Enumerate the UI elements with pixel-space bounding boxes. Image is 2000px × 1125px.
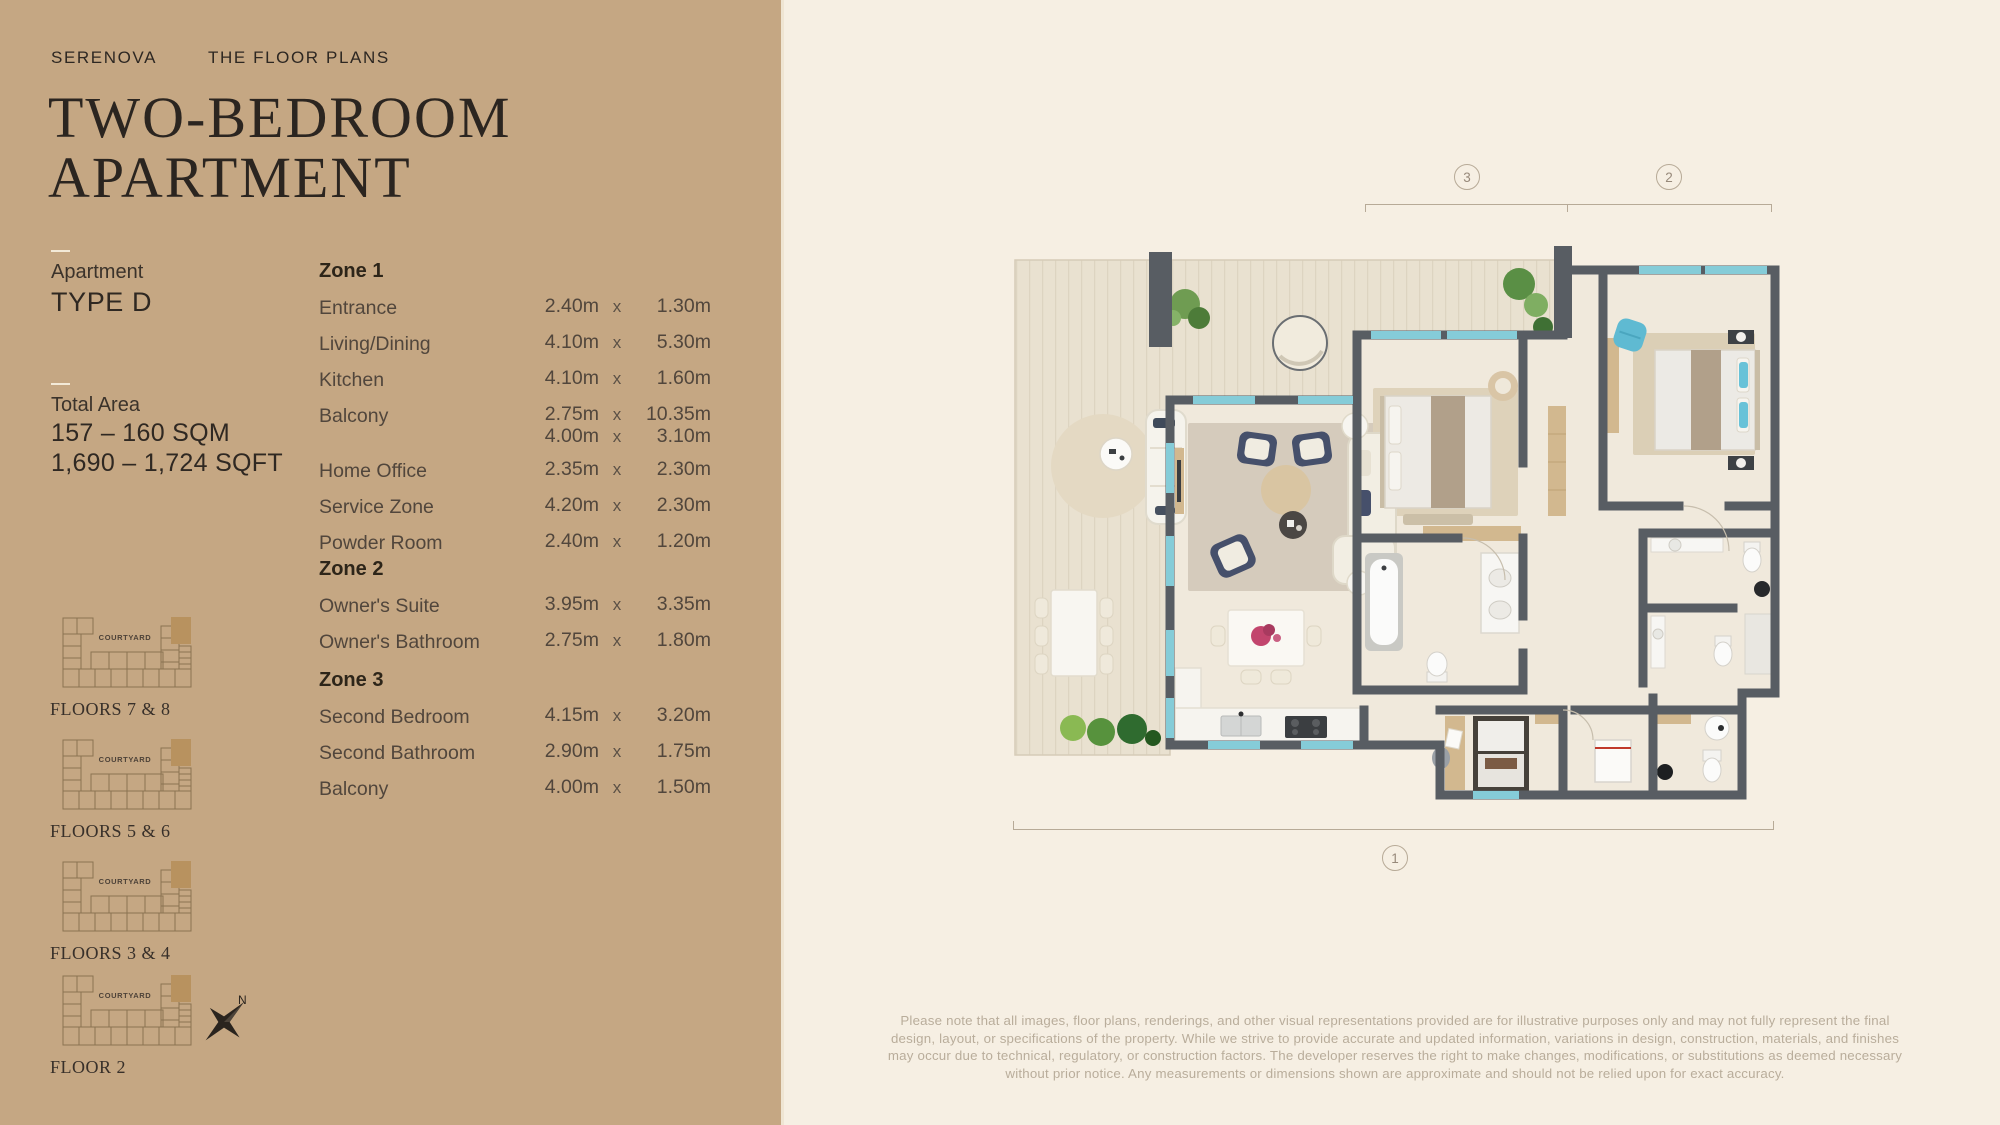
bracket-tick — [1773, 821, 1774, 829]
total-area-sqft: 1,690 – 1,724 SQFT — [51, 449, 283, 478]
room-name: Entrance — [319, 296, 527, 320]
zone-table: Zone 2Owner's Suite3.95mx3.35mOwner's Ba… — [319, 558, 711, 666]
page-title: TWO-BEDROOMAPARTMENT — [48, 88, 511, 209]
dimension-line: 2.90mx1.75m — [527, 741, 711, 763]
floor-diagram-1[interactable]: COURTYARD FLOORS 7 & 8 — [50, 612, 240, 720]
dimension-line: 2.40mx1.20m — [527, 531, 711, 553]
highlighted-unit — [171, 617, 191, 644]
total-area-label: Total Area — [51, 394, 140, 417]
dimension-row: Powder Room2.40mx1.20m — [319, 531, 711, 555]
room-dimensions: 2.35mx2.30m — [527, 459, 711, 481]
divider-dash — [51, 383, 70, 385]
dim-separator: x — [599, 332, 635, 354]
dim-width: 4.10m — [527, 332, 599, 354]
bracket-tick — [1771, 204, 1772, 212]
room-dimensions: 2.75mx10.35m4.00mx3.10m — [527, 404, 711, 447]
floor-diagram-label: FLOORS 7 & 8 — [50, 699, 240, 720]
dim-length: 1.75m — [635, 741, 711, 763]
dimension-row: Owner's Bathroom2.75mx1.80m — [319, 630, 711, 654]
room-dimensions: 4.15mx3.20m — [527, 705, 711, 727]
dim-separator: x — [599, 296, 635, 318]
dim-separator: x — [599, 705, 635, 727]
dimension-line: 2.35mx2.30m — [527, 459, 711, 481]
floor-plan-rendering — [1003, 238, 1793, 816]
floor-diagram-label: FLOOR 2 — [50, 1057, 240, 1078]
room-dimensions: 2.40mx1.30m — [527, 296, 711, 318]
dim-width: 2.90m — [527, 741, 599, 763]
dim-width: 4.10m — [527, 368, 599, 390]
room-dimensions: 2.75mx1.80m — [527, 630, 711, 652]
dim-length: 10.35m — [635, 404, 711, 426]
room-dimensions: 4.00mx1.50m — [527, 777, 711, 799]
highlighted-unit — [171, 739, 191, 766]
room-name: Balcony — [319, 404, 527, 428]
floor-plan — [1003, 238, 1793, 816]
dimension-row: Living/Dining4.10mx5.30m — [319, 332, 711, 356]
wall-stub — [1149, 252, 1172, 347]
room-dimensions: 4.20mx2.30m — [527, 495, 711, 517]
panel-divider — [781, 0, 784, 1125]
header-row: SERENOVA THE FLOOR PLANS — [51, 48, 157, 68]
highlighted-unit — [171, 975, 191, 1002]
dim-width: 2.75m — [527, 404, 599, 426]
floor-diagram-2[interactable]: COURTYARD FLOORS 5 & 6 — [50, 734, 240, 842]
dim-length: 3.35m — [635, 594, 711, 616]
hanging-chair — [1273, 316, 1327, 370]
dimension-line: 3.95mx3.35m — [527, 594, 711, 616]
building-outline: COURTYARD — [50, 856, 206, 936]
dimension-row: Balcony4.00mx1.50m — [319, 777, 711, 801]
dimension-line: 2.75mx1.80m — [527, 630, 711, 652]
dim-separator: x — [599, 777, 635, 799]
courtyard-label: COURTYARD — [99, 991, 152, 1000]
dimension-row: Home Office2.35mx2.30m — [319, 459, 711, 483]
zone-marker-3: 3 — [1454, 164, 1480, 190]
dim-separator: x — [599, 531, 635, 553]
building-outline: COURTYARD — [50, 734, 206, 814]
dim-width: 2.40m — [527, 531, 599, 553]
brand-name: SERENOVA — [51, 48, 157, 67]
dim-separator: x — [599, 495, 635, 517]
dimension-line: 4.20mx2.30m — [527, 495, 711, 517]
compass-n-label: N — [238, 993, 247, 1007]
courtyard-label: COURTYARD — [99, 755, 152, 764]
room-name: Balcony — [319, 777, 527, 801]
dim-width: 4.15m — [527, 705, 599, 727]
room-name: Home Office — [319, 459, 527, 483]
dim-length: 3.10m — [635, 426, 711, 448]
zone-bracket-top — [1365, 204, 1772, 205]
dimension-line: 4.15mx3.20m — [527, 705, 711, 727]
floor-diagram-label: FLOORS 5 & 6 — [50, 821, 240, 842]
dim-length: 3.20m — [635, 705, 711, 727]
dim-separator: x — [599, 368, 635, 390]
brochure-page: SERENOVA THE FLOOR PLANS TWO-BEDROOMAPAR… — [0, 0, 2000, 1125]
zone-marker-2: 2 — [1656, 164, 1682, 190]
bracket-tick — [1365, 204, 1366, 212]
room-dimensions: 4.10mx5.30m — [527, 332, 711, 354]
zone-title: Zone 2 — [319, 558, 711, 581]
floor-diagram-3[interactable]: COURTYARD FLOORS 3 & 4 — [50, 856, 240, 964]
floor-diagram-label: FLOORS 3 & 4 — [50, 943, 240, 964]
dim-length: 2.30m — [635, 459, 711, 481]
dimension-row: Service Zone4.20mx2.30m — [319, 495, 711, 519]
room-name: Second Bedroom — [319, 705, 527, 729]
dimension-line: 4.00mx3.10m — [527, 426, 711, 448]
zone-title: Zone 3 — [319, 669, 711, 692]
outdoor-dining-set — [1035, 590, 1113, 676]
building-outline: COURTYARD — [50, 612, 206, 692]
dimension-row: Owner's Suite3.95mx3.35m — [319, 594, 711, 618]
room-name: Kitchen — [319, 368, 527, 392]
room-name: Owner's Suite — [319, 594, 527, 618]
highlighted-unit — [171, 861, 191, 888]
dimension-row: Kitchen4.10mx1.60m — [319, 368, 711, 392]
bracket-tick — [1567, 204, 1568, 212]
dim-width: 2.35m — [527, 459, 599, 481]
dimension-line: 4.10mx1.60m — [527, 368, 711, 390]
dim-separator: x — [599, 741, 635, 763]
zone-title: Zone 1 — [319, 260, 711, 283]
legal-disclaimer: Please note that all images, floor plans… — [885, 1012, 1905, 1082]
dimension-row: Second Bathroom2.90mx1.75m — [319, 741, 711, 765]
dim-length: 1.20m — [635, 531, 711, 553]
courtyard-label: COURTYARD — [99, 877, 152, 886]
dim-width: 4.00m — [527, 426, 599, 448]
dimension-row: Balcony2.75mx10.35m4.00mx3.10m — [319, 404, 711, 447]
section-title: THE FLOOR PLANS — [208, 48, 390, 68]
dimension-line: 4.00mx1.50m — [527, 777, 711, 799]
apartment-label: Apartment — [51, 261, 143, 284]
compass-north-icon: N — [194, 988, 258, 1052]
zone-table: Zone 1Entrance2.40mx1.30mLiving/Dining4.… — [319, 260, 711, 567]
dim-length: 1.50m — [635, 777, 711, 799]
dimension-row: Entrance2.40mx1.30m — [319, 296, 711, 320]
room-dimensions: 2.90mx1.75m — [527, 741, 711, 763]
room-name: Powder Room — [319, 531, 527, 555]
zone-marker-1: 1 — [1382, 845, 1408, 871]
dimension-line: 2.75mx10.35m — [527, 404, 711, 426]
room-name: Second Bathroom — [319, 741, 527, 765]
room-name: Owner's Bathroom — [319, 630, 527, 654]
dim-separator: x — [599, 459, 635, 481]
bracket-tick — [1013, 821, 1014, 829]
total-area-sqm: 157 – 160 SQM — [51, 419, 230, 448]
wall-stub — [1554, 246, 1572, 338]
room-name: Living/Dining — [319, 332, 527, 356]
dim-length: 5.30m — [635, 332, 711, 354]
dimension-line: 2.40mx1.30m — [527, 296, 711, 318]
dim-length: 1.80m — [635, 630, 711, 652]
dim-separator: x — [599, 426, 635, 448]
dimension-line: 4.10mx5.30m — [527, 332, 711, 354]
room-name: Service Zone — [319, 495, 527, 519]
dim-width: 2.40m — [527, 296, 599, 318]
zone-table: Zone 3Second Bedroom4.15mx3.20mSecond Ba… — [319, 669, 711, 813]
zone-bracket-bottom — [1013, 829, 1774, 830]
divider-dash — [51, 250, 70, 252]
dim-separator: x — [599, 594, 635, 616]
courtyard-label: COURTYARD — [99, 633, 152, 642]
dim-width: 2.75m — [527, 630, 599, 652]
dim-width: 4.00m — [527, 777, 599, 799]
room-dimensions: 3.95mx3.35m — [527, 594, 711, 616]
room-dimensions: 4.10mx1.60m — [527, 368, 711, 390]
left-panel: SERENOVA THE FLOOR PLANS TWO-BEDROOMAPAR… — [0, 0, 781, 1125]
dim-length: 1.60m — [635, 368, 711, 390]
building-outline: COURTYARD — [50, 970, 206, 1050]
apartment-type: TYPE D — [51, 287, 152, 318]
dim-length: 2.30m — [635, 495, 711, 517]
dim-separator: x — [599, 404, 635, 426]
dim-width: 3.95m — [527, 594, 599, 616]
page-title-line2: APARTMENT — [48, 145, 412, 210]
page-title-line1: TWO-BEDROOM — [48, 85, 511, 150]
dimension-row: Second Bedroom4.15mx3.20m — [319, 705, 711, 729]
dim-separator: x — [599, 630, 635, 652]
dim-length: 1.30m — [635, 296, 711, 318]
dim-width: 4.20m — [527, 495, 599, 517]
room-dimensions: 2.40mx1.20m — [527, 531, 711, 553]
